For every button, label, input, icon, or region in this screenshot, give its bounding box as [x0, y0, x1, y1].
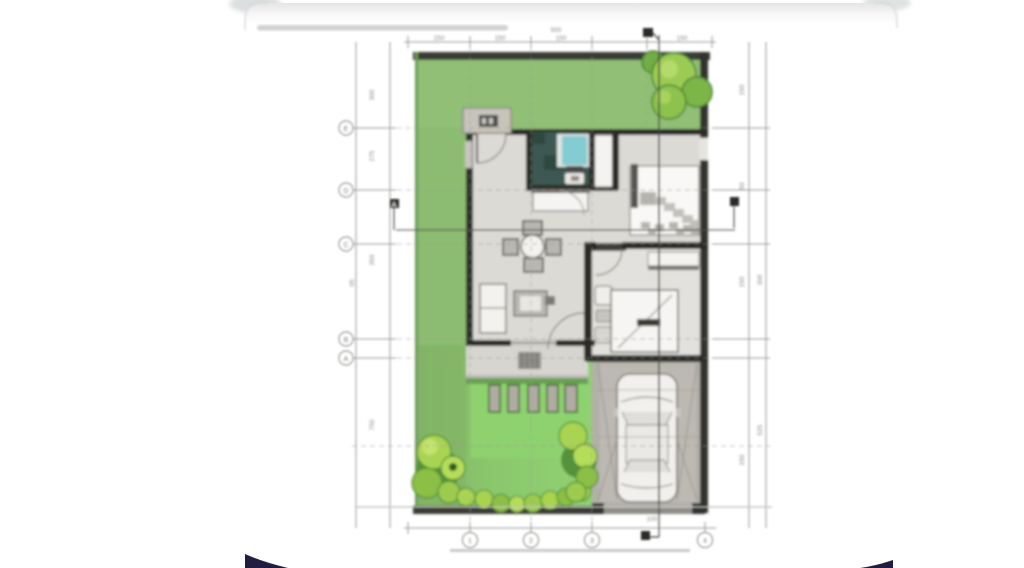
svg-text:3: 3 [590, 538, 594, 545]
svg-text:50: 50 [739, 182, 746, 190]
svg-text:275: 275 [369, 150, 376, 161]
svg-text:A: A [344, 356, 349, 363]
svg-text:750: 750 [369, 419, 376, 430]
svg-text:150: 150 [556, 35, 567, 42]
svg-text:05: 05 [349, 279, 356, 287]
svg-text:150: 150 [739, 84, 746, 95]
svg-text:150: 150 [434, 35, 445, 42]
svg-text:B: B [344, 337, 349, 344]
svg-text:525: 525 [757, 424, 764, 435]
svg-text:150: 150 [739, 454, 746, 465]
svg-text:300: 300 [369, 89, 376, 100]
svg-text:2: 2 [529, 538, 533, 545]
svg-text:4: 4 [703, 538, 707, 545]
svg-text:150: 150 [677, 35, 688, 42]
svg-text:150: 150 [739, 276, 746, 287]
svg-text:D: D [343, 188, 348, 195]
svg-text:150: 150 [495, 35, 506, 42]
svg-text:A: A [392, 202, 397, 209]
svg-text:350: 350 [369, 254, 376, 265]
svg-text:300: 300 [757, 274, 764, 285]
svg-text:C: C [343, 242, 348, 249]
svg-text:E: E [344, 126, 349, 133]
svg-text:500: 500 [551, 27, 562, 34]
svg-text:1: 1 [468, 538, 472, 545]
svg-text:100: 100 [647, 516, 658, 523]
